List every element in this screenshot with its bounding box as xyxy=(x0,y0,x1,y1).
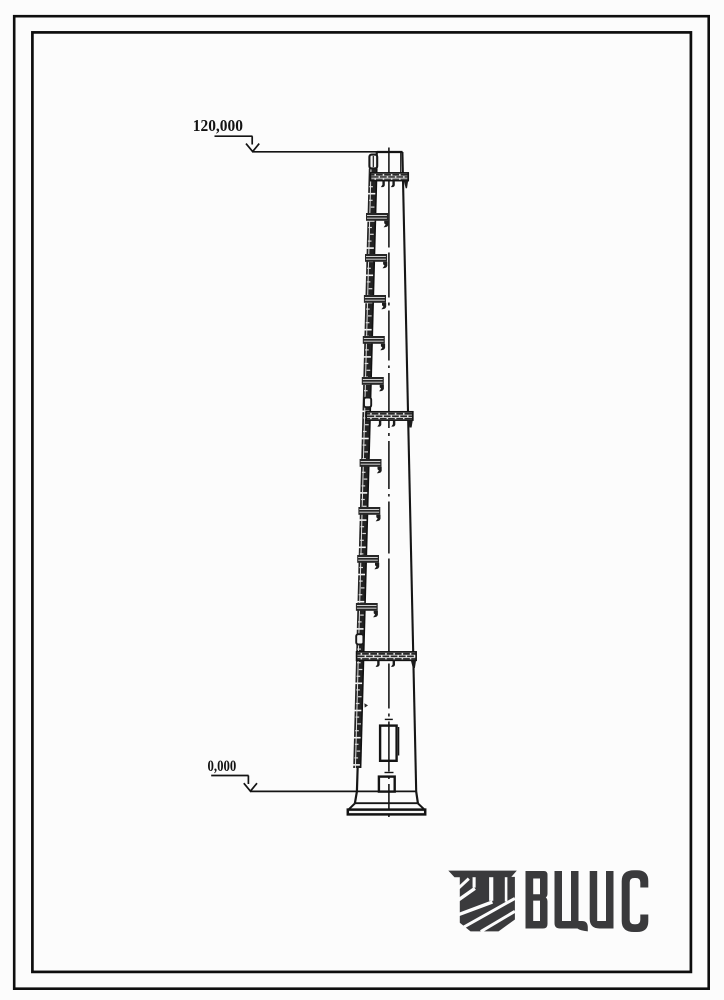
svg-text:120,000: 120,000 xyxy=(193,117,243,135)
svg-text:0,000: 0,000 xyxy=(208,758,237,776)
